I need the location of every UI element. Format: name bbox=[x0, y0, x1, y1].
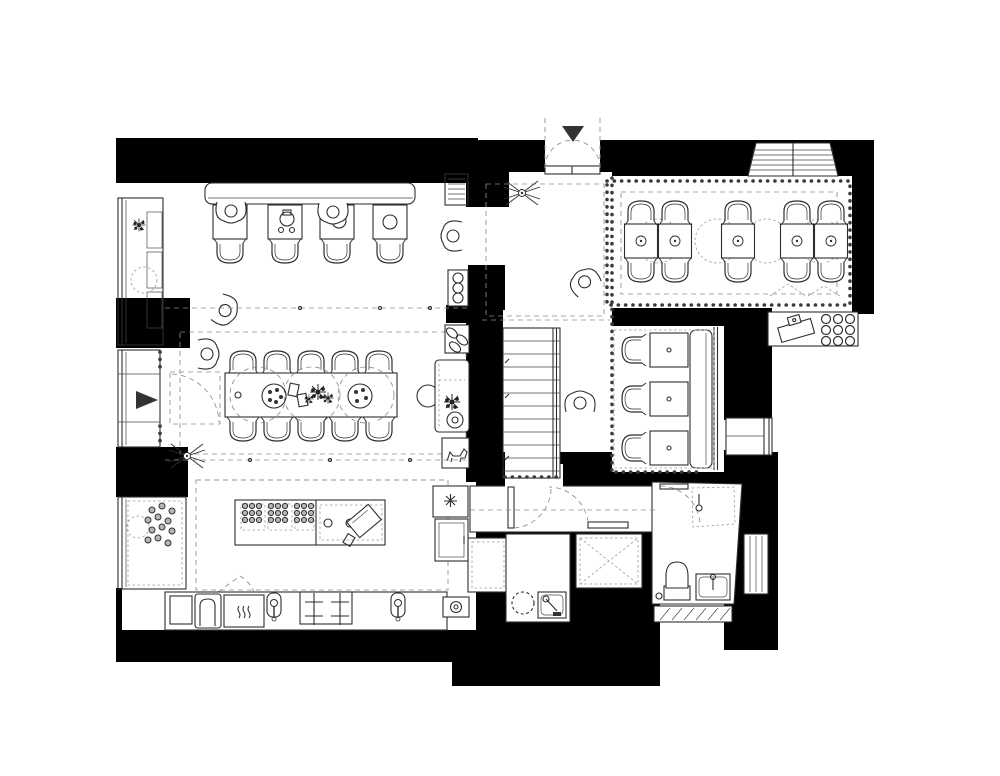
food-tray bbox=[268, 503, 287, 522]
wall-bench bbox=[205, 183, 415, 204]
right-window bbox=[726, 418, 772, 455]
glass-rack bbox=[822, 315, 855, 346]
wall-bench bbox=[690, 330, 712, 468]
plant-icon bbox=[133, 219, 146, 232]
food-tray bbox=[294, 503, 313, 522]
floor-plan-canvas bbox=[0, 0, 1000, 776]
entry-arrow-icon bbox=[562, 126, 584, 142]
stove bbox=[300, 592, 352, 625]
cabinet bbox=[435, 519, 468, 561]
closet-niche bbox=[468, 538, 508, 592]
person-figure bbox=[216, 202, 246, 223]
outlet-box bbox=[443, 597, 469, 617]
warming-tray bbox=[224, 595, 264, 627]
communal-table bbox=[225, 373, 397, 417]
shaft bbox=[576, 534, 642, 588]
banquette-nook bbox=[614, 327, 718, 472]
wc-room bbox=[506, 534, 570, 622]
person-figure bbox=[565, 391, 595, 412]
bath-sink bbox=[696, 574, 730, 600]
bathroom bbox=[652, 482, 742, 622]
plant-icon bbox=[444, 394, 460, 410]
threshold bbox=[654, 606, 732, 622]
booth-tables bbox=[625, 224, 848, 258]
person-figure bbox=[441, 221, 462, 251]
person-figure bbox=[318, 203, 348, 224]
host-counter bbox=[768, 312, 858, 346]
dog-box bbox=[442, 438, 469, 468]
appliance-circles bbox=[448, 270, 468, 306]
person-figure bbox=[198, 339, 219, 369]
kitchen-island bbox=[235, 500, 385, 546]
food-tray bbox=[242, 503, 261, 522]
big-sink bbox=[195, 594, 221, 628]
floor-plan-drawing bbox=[0, 0, 1000, 776]
bay-window bbox=[748, 143, 838, 176]
